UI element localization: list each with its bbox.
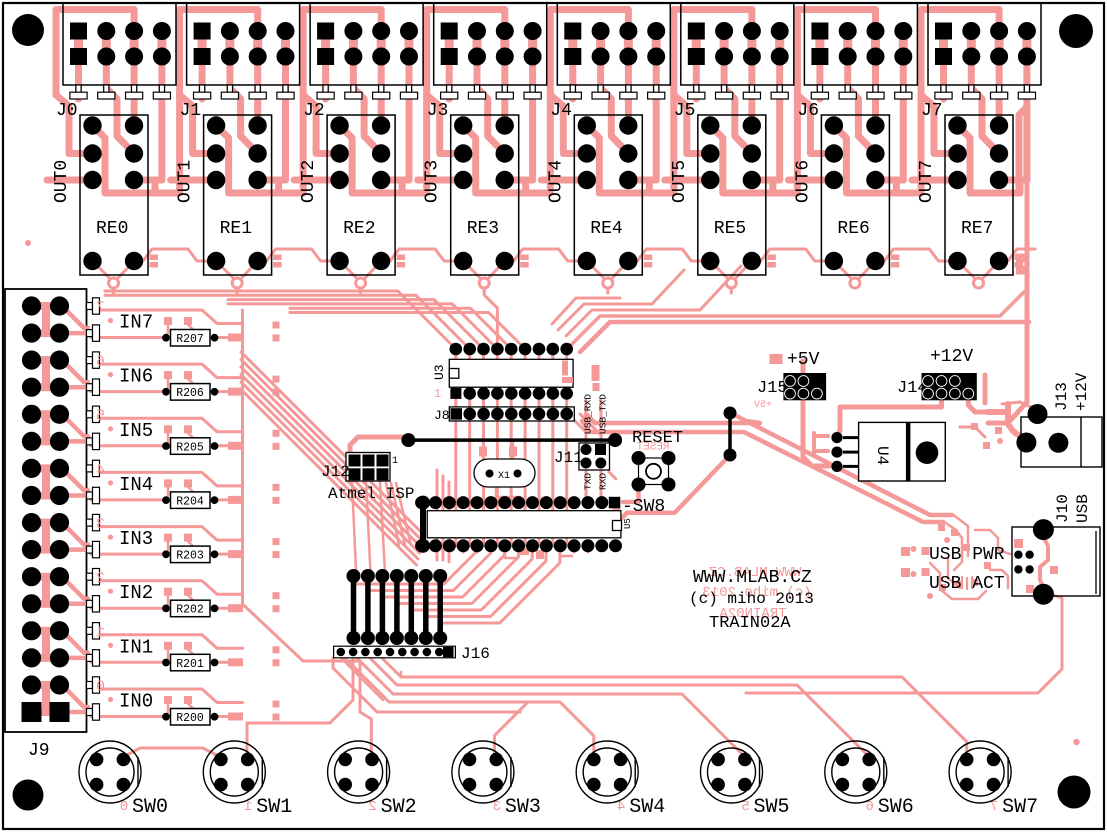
- svg-text:RE7: RE7: [961, 219, 993, 239]
- svg-text:U4: U4: [873, 446, 891, 465]
- svg-text:RESET: RESET: [632, 429, 683, 448]
- svg-text:TXD: TXD: [583, 473, 594, 490]
- svg-text:OUT7: OUT7: [917, 160, 937, 203]
- svg-text:OUT0: OUT0: [52, 160, 72, 203]
- svg-text:0: 0: [96, 679, 105, 696]
- svg-text:6: 6: [96, 354, 105, 371]
- svg-text:IN5: IN5: [119, 420, 153, 442]
- svg-text:SW6: SW6: [878, 796, 914, 819]
- svg-text:R202: R202: [176, 604, 204, 617]
- svg-text:RE0: RE0: [96, 219, 128, 239]
- svg-text:IN4: IN4: [119, 474, 153, 496]
- svg-text:WWW.MLAB.CZ: WWW.MLAB.CZ: [693, 568, 812, 588]
- svg-text:J4: J4: [550, 101, 572, 121]
- svg-text:X1: X1: [498, 471, 510, 482]
- svg-text:R206: R206: [176, 387, 204, 400]
- svg-text:OUT5: OUT5: [670, 160, 690, 203]
- svg-text:SW5: SW5: [754, 796, 790, 819]
- svg-text:USB: USB: [1074, 494, 1092, 523]
- svg-text:USB_RXD: USB_RXD: [583, 394, 594, 434]
- svg-text:4: 4: [96, 462, 105, 479]
- svg-text:TRAIN02A: TRAIN02A: [709, 614, 791, 633]
- svg-text:IN1: IN1: [119, 636, 153, 658]
- svg-text:OUT2: OUT2: [299, 160, 319, 203]
- svg-text:+12V: +12V: [930, 347, 973, 367]
- svg-text:RXD: RXD: [598, 473, 609, 490]
- svg-text:U3: U3: [432, 364, 447, 380]
- svg-text:Atmel ISP: Atmel ISP: [328, 485, 414, 503]
- svg-text:J11: J11: [554, 449, 583, 467]
- svg-text:RE5: RE5: [714, 219, 746, 239]
- svg-text:J12: J12: [321, 463, 350, 481]
- svg-text:SW1: SW1: [256, 796, 292, 819]
- svg-text:IN0: IN0: [119, 691, 153, 713]
- svg-text:+5V: +5V: [787, 350, 820, 370]
- svg-text:OUT3: OUT3: [423, 160, 443, 203]
- svg-text:J10: J10: [1054, 494, 1072, 523]
- svg-text:RE6: RE6: [837, 219, 869, 239]
- svg-text:J13: J13: [1053, 382, 1071, 411]
- svg-text:USB_TXD: USB_TXD: [598, 394, 609, 434]
- svg-text:1: 1: [392, 456, 398, 467]
- svg-text:3: 3: [96, 516, 105, 533]
- svg-text:R204: R204: [176, 495, 204, 508]
- svg-text:J3: J3: [427, 101, 449, 121]
- svg-text:J9: J9: [28, 741, 50, 761]
- svg-text:J7: J7: [921, 101, 943, 121]
- svg-text:U5: U5: [623, 518, 633, 529]
- svg-text:R200: R200: [176, 712, 204, 725]
- svg-text:1: 1: [96, 624, 105, 641]
- svg-text:RE1: RE1: [220, 219, 252, 239]
- svg-text:J16: J16: [461, 645, 490, 663]
- svg-text:R201: R201: [176, 658, 204, 671]
- svg-text:J2: J2: [303, 101, 325, 121]
- svg-text:USB ACT: USB ACT: [929, 574, 1005, 594]
- svg-text:(c) miho 2013: (c) miho 2013: [689, 590, 814, 608]
- svg-text:J15: J15: [757, 379, 788, 398]
- svg-text:J6: J6: [797, 101, 819, 121]
- svg-text:+5V: +5V: [754, 400, 772, 411]
- svg-text:2: 2: [96, 570, 105, 587]
- svg-text:R203: R203: [176, 550, 204, 563]
- svg-text:OUT4: OUT4: [546, 160, 566, 203]
- svg-text:R205: R205: [176, 441, 204, 454]
- svg-text:SW4: SW4: [629, 796, 665, 819]
- svg-text:OUT6: OUT6: [793, 160, 813, 203]
- svg-text:R207: R207: [176, 333, 204, 346]
- svg-text:OUT1: OUT1: [176, 160, 196, 203]
- svg-text:-SW8: -SW8: [622, 497, 665, 517]
- svg-text:SW3: SW3: [505, 796, 541, 819]
- svg-text:SW2: SW2: [381, 796, 417, 819]
- svg-text:IN7: IN7: [119, 312, 153, 334]
- svg-text:5: 5: [96, 408, 105, 425]
- svg-text:J8: J8: [434, 408, 450, 423]
- svg-text:SW7: SW7: [1002, 796, 1038, 819]
- svg-text:J5: J5: [674, 101, 696, 121]
- svg-text:1: 1: [434, 387, 441, 401]
- svg-text:7: 7: [96, 300, 105, 317]
- svg-text:RE2: RE2: [343, 219, 375, 239]
- svg-text:J0: J0: [56, 101, 78, 121]
- svg-text:IN6: IN6: [119, 366, 153, 388]
- svg-text:USB PWR: USB PWR: [929, 545, 1005, 565]
- svg-text:RE3: RE3: [467, 219, 499, 239]
- svg-text:IN2: IN2: [119, 582, 153, 604]
- svg-text:IN3: IN3: [119, 528, 153, 550]
- svg-text:RE4: RE4: [590, 219, 622, 239]
- svg-text:J1: J1: [180, 101, 202, 121]
- svg-text:SW0: SW0: [132, 796, 168, 819]
- svg-text:+12V: +12V: [1073, 372, 1091, 411]
